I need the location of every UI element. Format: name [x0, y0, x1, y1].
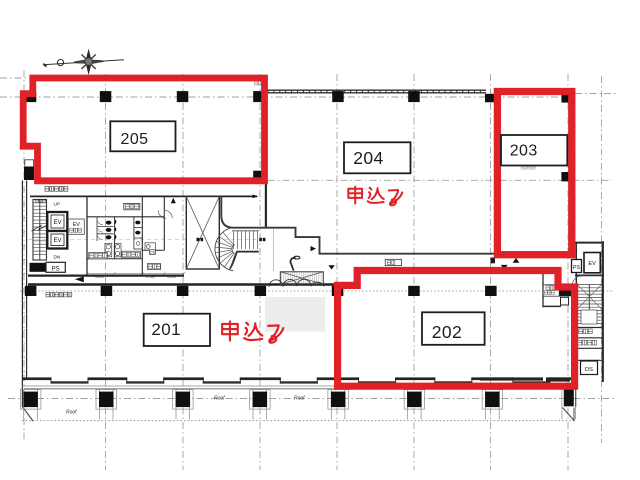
svg-text:DS: DS	[585, 367, 593, 373]
svg-text:201: 201	[151, 320, 181, 339]
svg-text:Roof: Roof	[66, 410, 77, 416]
svg-text:202: 202	[432, 322, 462, 342]
svg-text:EV: EV	[73, 222, 81, 228]
svg-text:DN: DN	[54, 254, 61, 259]
svg-text:EV: EV	[53, 220, 61, 226]
svg-text:Roof: Roof	[214, 396, 225, 402]
svg-text:EV: EV	[53, 238, 61, 244]
svg-text:EV: EV	[588, 261, 596, 267]
svg-text:204: 204	[353, 148, 383, 168]
svg-text:PS: PS	[573, 265, 580, 271]
svg-text:205: 205	[121, 131, 149, 148]
svg-text:Roof: Roof	[294, 396, 305, 402]
svg-text:UP: UP	[54, 202, 60, 207]
svg-text:DS: DS	[150, 251, 155, 255]
svg-text:203: 203	[510, 142, 538, 159]
svg-text:PS: PS	[52, 266, 60, 272]
